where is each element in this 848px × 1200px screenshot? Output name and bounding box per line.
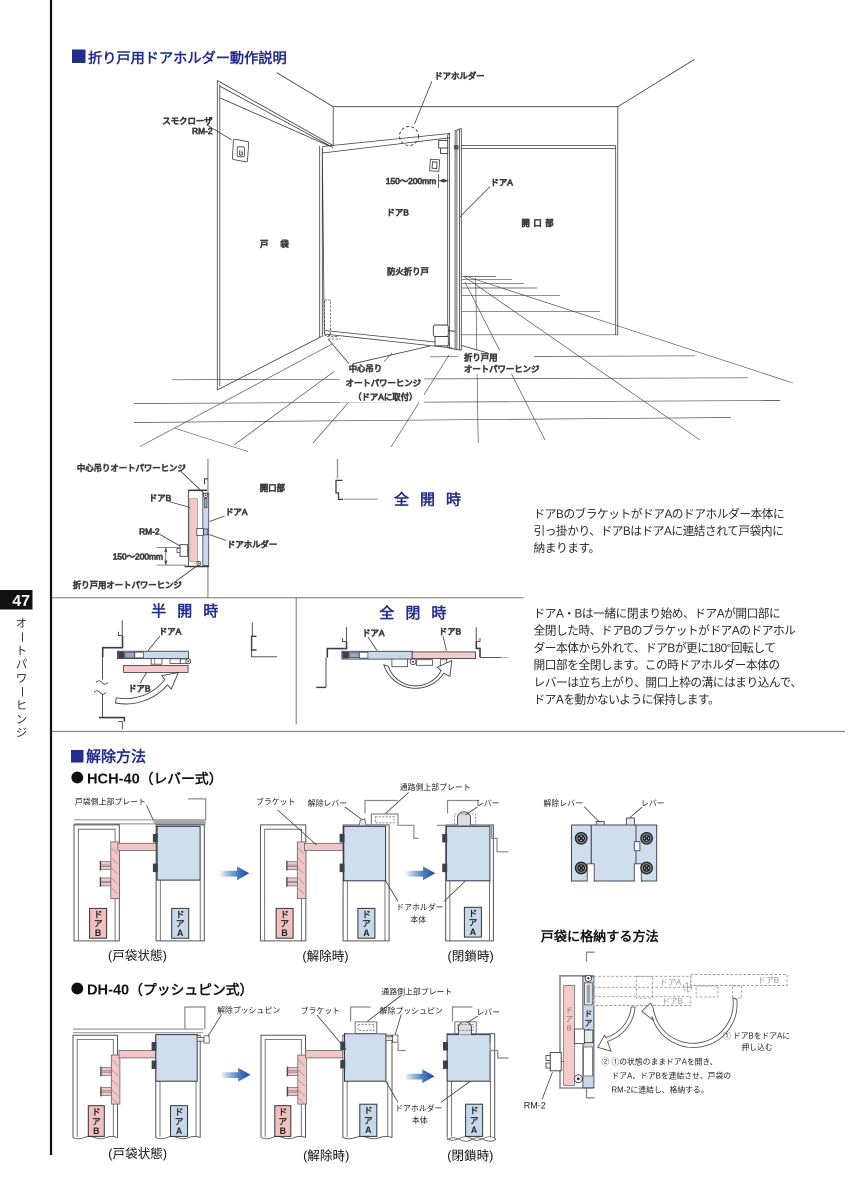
svg-text:ドアA: ドアA: [362, 628, 385, 638]
svg-text:解除プッシュピン: 解除プッシュピン: [217, 1005, 280, 1015]
svg-text:RM-2: RM-2: [524, 1101, 546, 1111]
svg-text:ア: ア: [566, 1015, 574, 1024]
svg-text:戸袋: 戸袋: [260, 239, 301, 249]
svg-text:ドアホルダー: ドアホルダー: [396, 902, 443, 912]
svg-text:B: B: [281, 928, 287, 938]
svg-text:解除方法: 解除方法: [86, 747, 146, 765]
svg-text:ー: ー: [15, 686, 27, 698]
svg-text:レバー: レバー: [476, 1008, 500, 1017]
svg-text:納まります。: 納まります。: [534, 542, 600, 555]
svg-text:HCH-40（レバー式）: HCH-40（レバー式）: [87, 771, 223, 788]
svg-text:ア: ア: [175, 1117, 184, 1127]
svg-text:防火折り戸: 防火折り戸: [387, 267, 429, 277]
svg-text:B: B: [95, 928, 101, 938]
svg-text:ドアBのブラケットがドアAのドアホルダー本体に: ドアBのブラケットがドアAのドアホルダー本体に: [534, 507, 785, 521]
svg-text:ドアA: ドアA: [491, 177, 514, 187]
svg-text:折り戸用ドアホルダー動作説明: 折り戸用ドアホルダー動作説明: [88, 50, 287, 67]
svg-text:RM-2: RM-2: [139, 527, 160, 537]
svg-text:ア: ア: [278, 1117, 287, 1127]
svg-text:ア: ア: [584, 1019, 592, 1028]
svg-text:オートパワーヒンジ: オートパワーヒンジ: [464, 364, 539, 374]
svg-text:解除レバー: 解除レバー: [308, 798, 348, 808]
svg-text:開口部: 開口部: [522, 218, 558, 228]
svg-text:A: A: [177, 928, 184, 938]
svg-text:ド: ド: [566, 1006, 574, 1015]
svg-text:150～200mm: 150～200mm: [386, 176, 436, 186]
svg-text:A: A: [470, 927, 477, 937]
svg-text:解除レバー: 解除レバー: [544, 798, 584, 808]
svg-text:ド: ド: [470, 1106, 479, 1116]
svg-text:(解除時): (解除時): [303, 1149, 349, 1163]
svg-text:47: 47: [12, 593, 30, 610]
svg-text:戸袋側上部プレート: 戸袋側上部プレート: [75, 796, 146, 806]
svg-text:RM-2: RM-2: [192, 126, 213, 136]
svg-text:(閉鎖時): (閉鎖時): [448, 948, 494, 963]
svg-text:ドアB: ドアB: [662, 997, 683, 1006]
svg-text:レバー: レバー: [476, 799, 500, 808]
svg-text:ドアA・Bは一緒に閉まり始め、ドアAが開口部に: ドアA・Bは一緒に閉まり始め、ドアAが開口部に: [534, 607, 781, 621]
svg-text:150～200mm: 150～200mm: [113, 551, 163, 561]
svg-text:ド: ド: [92, 1107, 101, 1117]
svg-text:本体: 本体: [412, 1115, 428, 1125]
svg-text:引っ掛かり、ドアBはドアAに連結されて戸袋内に: 引っ掛かり、ドアBはドアAに連結されて戸袋内に: [534, 524, 784, 538]
svg-text:ドアB: ドアB: [758, 976, 779, 985]
svg-text:ドアA: ドアA: [159, 627, 182, 637]
svg-text:(戸袋状態): (戸袋状態): [108, 948, 167, 963]
svg-text:(解除時): (解除時): [302, 949, 348, 963]
svg-text:ア: ア: [364, 1115, 373, 1125]
svg-text:ド: ド: [278, 1107, 287, 1117]
svg-text:ダー本体から外れて、ドアBが更に180°回転して: ダー本体から外れて、ドアBが更に180°回転して: [534, 641, 776, 655]
svg-text:ヒ: ヒ: [16, 699, 28, 712]
svg-text:戸袋に格納する方法: 戸袋に格納する方法: [541, 928, 659, 944]
svg-text:スモクローザ: スモクローザ: [162, 116, 212, 126]
svg-text:全閉時: 全閉時: [378, 604, 457, 622]
svg-text:ドアAを動かないように保持します。: ドアAを動かないように保持します。: [534, 693, 720, 707]
svg-text:ドアB: ドアB: [439, 627, 462, 637]
svg-text:A: A: [363, 928, 370, 938]
svg-text:ブラケット: ブラケット: [301, 1005, 340, 1015]
svg-text:全開時: 全開時: [393, 491, 472, 509]
svg-text:通路側上部プレート: 通路側上部プレート: [381, 986, 452, 996]
svg-text:全閉した時、ドアBのブラケットがドアAのドアホル: 全閉した時、ドアBのブラケットがドアAのドアホル: [534, 624, 797, 638]
svg-text:ド: ド: [364, 1106, 373, 1116]
svg-text:ドアB: ドアB: [387, 208, 410, 218]
svg-text:解除プッシュピン: 解除プッシュピン: [380, 1006, 443, 1016]
svg-text:半開時: 半開時: [151, 602, 229, 620]
svg-text:ジ: ジ: [16, 728, 28, 740]
svg-text:② ①の状態のままドアAを開き、: ② ①の状態のままドアAを開き、: [602, 1057, 718, 1067]
svg-text:B: B: [93, 1126, 99, 1136]
svg-text:折り戸用: 折り戸用: [464, 352, 498, 362]
svg-text:レバーは立ち上がり、開口上枠の溝にはまり込んで、: レバーは立ち上がり、開口上枠の溝にはまり込んで、: [534, 675, 802, 689]
svg-text:折り戸用オートパワーヒンジ: 折り戸用オートパワーヒンジ: [73, 580, 182, 590]
svg-text:ドアA: ドアA: [660, 978, 682, 987]
svg-text:A: A: [365, 1125, 372, 1135]
svg-text:ドアホルダー: ドアホルダー: [395, 1103, 442, 1113]
svg-text:ー: ー: [15, 631, 27, 643]
svg-text:DH-40（プッシュピン式）: DH-40（プッシュピン式）: [87, 982, 253, 999]
svg-text:（ドアAに取付）: （ドアAに取付）: [353, 392, 417, 402]
svg-text:ドアA、ドアBを連結させ、戸袋の: ドアA、ドアBを連結させ、戸袋の: [612, 1071, 732, 1081]
svg-text:(戸袋状態): (戸袋状態): [108, 1146, 167, 1161]
svg-text:A: A: [176, 1126, 183, 1136]
svg-text:ブラケット: ブラケット: [256, 796, 295, 806]
svg-text:ドアB: ドアB: [128, 683, 151, 693]
svg-text:押し込む: 押し込む: [742, 1042, 773, 1052]
svg-text:中心吊り: 中心吊り: [349, 363, 383, 373]
svg-text:レバー: レバー: [641, 799, 665, 808]
svg-text:開口部を全閉します。この時ドアホルダー本体の: 開口部を全閉します。この時ドアホルダー本体の: [534, 658, 780, 672]
svg-text:ドアホルダー: ドアホルダー: [434, 71, 484, 81]
svg-text:中心吊りオートパワーヒンジ: 中心吊りオートパワーヒンジ: [77, 463, 186, 473]
svg-text:開口部: 開口部: [260, 483, 285, 493]
svg-text:ドアB: ドアB: [149, 493, 172, 503]
svg-text:ド: ド: [584, 1010, 592, 1019]
svg-text:ドアホルダー: ドアホルダー: [227, 539, 277, 549]
svg-text:ド: ド: [175, 1107, 184, 1117]
svg-text:オ: オ: [16, 617, 28, 630]
svg-text:B: B: [280, 1126, 286, 1136]
svg-text:ア: ア: [470, 1115, 479, 1125]
svg-text:通路側上部プレート: 通路側上部プレート: [400, 782, 471, 792]
svg-text:ワ: ワ: [16, 673, 28, 685]
svg-text:パ: パ: [16, 658, 28, 671]
svg-text:① ドアBをドアAに: ① ドアBをドアAに: [723, 1032, 790, 1041]
svg-text:A: A: [471, 1125, 478, 1135]
svg-text:ト: ト: [16, 645, 28, 657]
svg-text:ン: ン: [16, 714, 28, 726]
svg-text:(閉鎖時): (閉鎖時): [447, 1148, 493, 1163]
svg-text:RM-2に連結し、格納する。: RM-2に連結し、格納する。: [612, 1085, 709, 1095]
svg-text:B: B: [567, 1024, 572, 1033]
svg-text:ア: ア: [92, 1117, 101, 1127]
svg-text:本体: 本体: [410, 915, 426, 925]
svg-text:ドアA: ドアA: [225, 507, 248, 517]
svg-text:オートパワーヒンジ: オートパワーヒンジ: [346, 378, 421, 388]
